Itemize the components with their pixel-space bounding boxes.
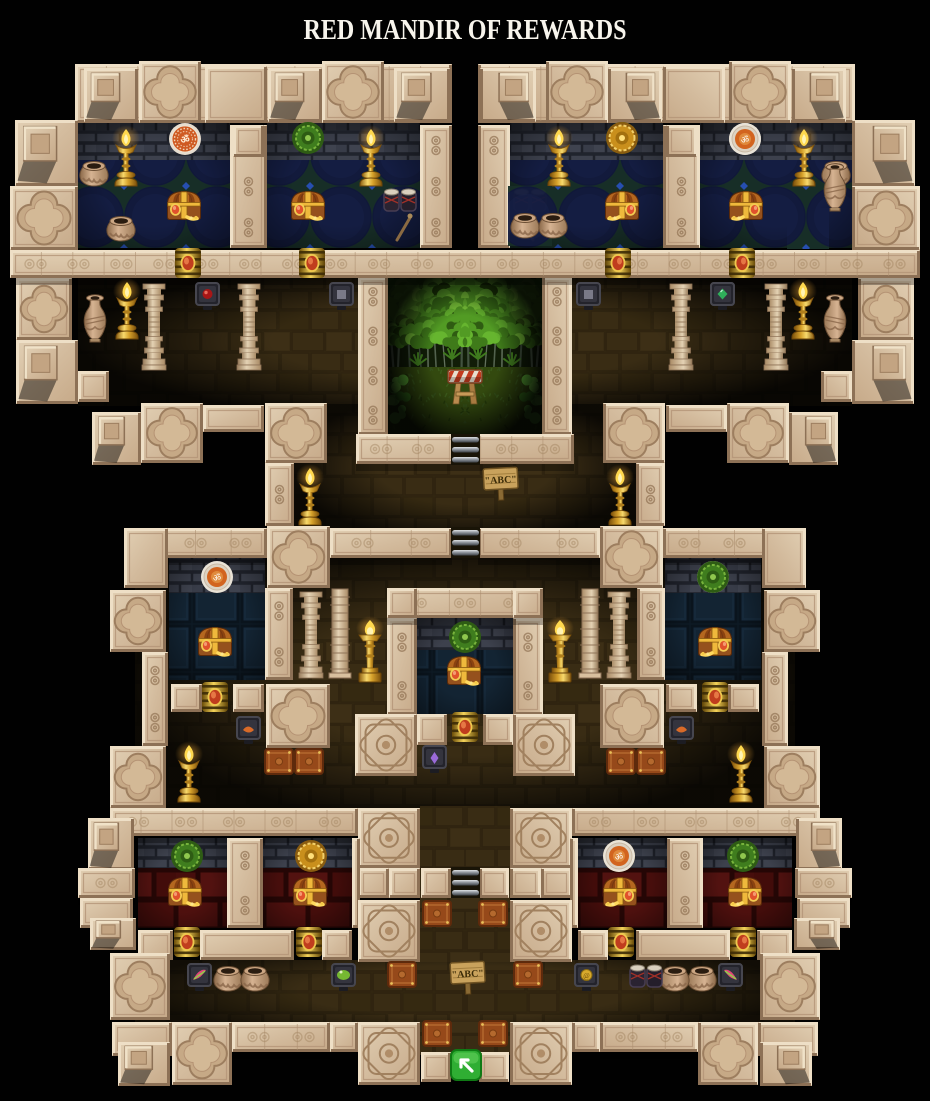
svg-text:RED MANDIR OF REWARDS: RED MANDIR OF REWARDS [304, 14, 627, 46]
svg-text:@: @ [583, 972, 590, 980]
